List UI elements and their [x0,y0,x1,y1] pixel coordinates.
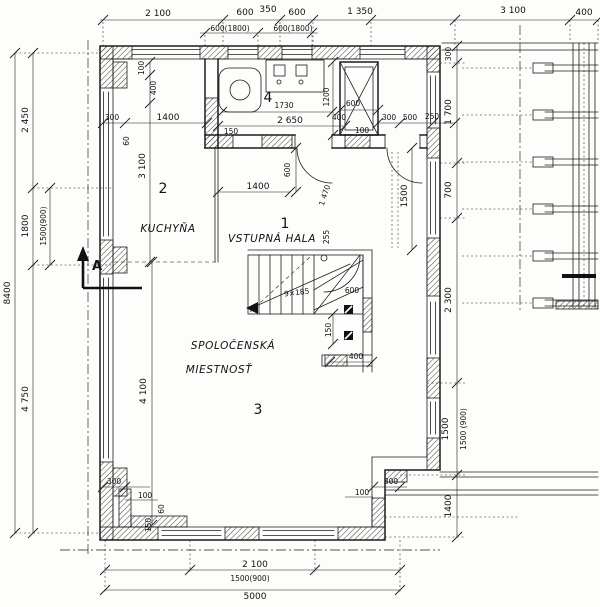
dim-label: 350 [259,5,276,15]
dim-label: 300 [384,477,399,486]
floor-plan-sheet: 2 100 600 350 600 1 350 3 100 400 600(18… [0,0,600,607]
dim-label: 150 [324,323,333,338]
dim-label: 150 [224,127,239,136]
dim-label: 4 750 [21,386,31,412]
dim-label: 400 [332,113,347,122]
dim-label: 500 [403,113,418,122]
dim-label: 100 [137,61,146,76]
dim-label: 600(1800) [273,24,312,33]
dim-label: 600 [288,8,305,18]
dim-label: 1500(900) [39,206,48,245]
floor-plan-drawing: 2 100 600 350 600 1 350 3 100 400 600(18… [0,0,600,607]
dim-label: 600 [236,8,253,18]
dim-label: 3 100 [500,6,526,16]
dim-label: 8400 [3,281,13,304]
labels: 2 100 600 350 600 1 350 3 100 400 600(18… [3,5,593,602]
dim-label: 1 350 [347,7,373,17]
dim-label: 60 [122,136,131,146]
dimension-chains [10,15,600,595]
dim-label: 1 700 [444,99,454,125]
dim-label: 4 100 [139,378,149,404]
dim-label: 300 [107,477,122,486]
dim-label: 255 [322,230,331,245]
dim-label: 5000 [244,592,267,602]
dim-label: 400 [349,352,364,361]
room-number-hall: 1 [281,216,290,232]
dim-label: 2 100 [145,9,171,19]
dim-label: 1500 [400,184,410,207]
pergola [385,25,598,517]
dim-label: 1400 [444,494,454,517]
dim-label: 1500 (900) [459,408,468,450]
dim-label: 600 [283,163,292,178]
section-label: A [92,259,102,274]
dim-label: 600(1800) [210,24,249,33]
dim-label: 100 [138,491,153,500]
dim-label: 1500(900) [230,574,269,583]
room-number-kitchen: 2 [159,181,168,197]
room-name-kitchen: KUCHYŇA [140,222,195,235]
dim-label: 2 450 [21,107,31,133]
dim-label: 1400 [157,113,180,123]
dim-label: 300 [444,47,453,62]
dim-label: 300 [105,113,120,122]
dim-label: 150 [144,518,153,533]
room-name-living-2: MIESTNOSŤ [186,363,253,376]
dim-label: 60 [157,504,166,514]
dim-label: 1200 [322,87,331,106]
dim-label: 100 [355,126,370,135]
dim-label: 3 100 [138,153,148,179]
stairs-note: 9×185 [284,286,311,298]
dim-label: 1 470 [317,183,332,206]
dim-label: 2 300 [444,287,454,313]
dim-label: 300 [382,113,397,122]
dim-label: 600 [346,99,361,108]
dim-label: 1400 [247,182,270,192]
dim-label: 400 [149,81,158,96]
dim-label: 400 [575,8,592,18]
pergola-beams [462,63,598,308]
dim-label: 1730 [274,101,293,110]
room-name-living-1: SPOLOČENSKÁ [191,339,275,352]
room-name-hall: VSTUPNÁ HALA [228,232,316,245]
toilet [219,68,261,112]
room-number-living: 3 [254,402,263,418]
dim-label: 700 [444,181,454,198]
dim-label: 2 650 [277,116,303,126]
dim-label: 1500 [441,417,451,440]
dim-label: 2 100 [242,560,268,570]
dim-label: 1800 [21,214,31,237]
dim-label: 600 [345,286,360,295]
room-number-bath: 4 [264,90,273,106]
dim-label: 250 [425,112,440,121]
dim-label: 100 [355,488,370,497]
